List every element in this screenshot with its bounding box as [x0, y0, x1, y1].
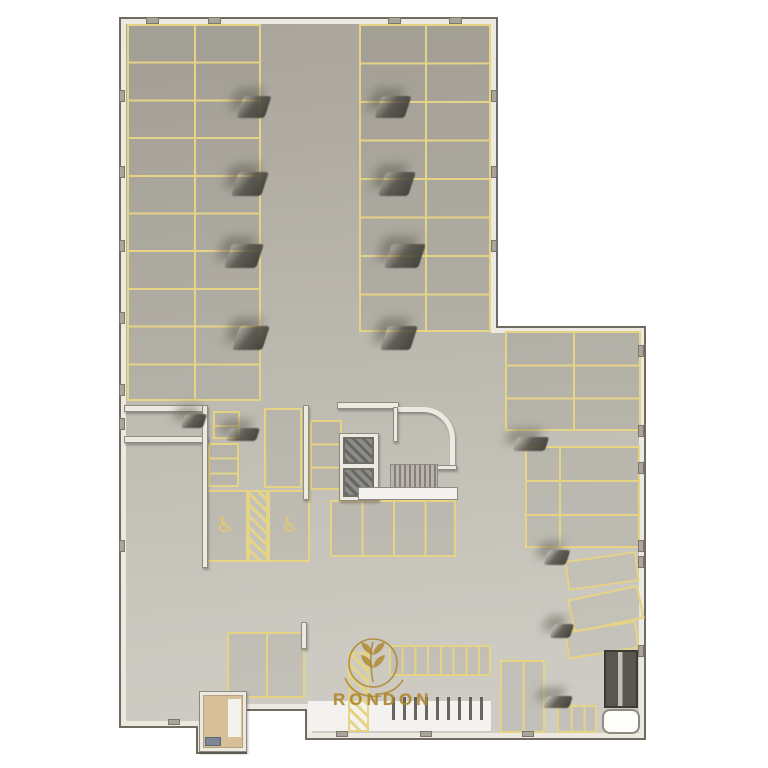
wall-column-tick	[168, 719, 180, 725]
wall-stub-lower-left	[301, 622, 307, 649]
column-shadow	[543, 696, 573, 708]
accessible-icon: ♿	[210, 515, 240, 539]
wall-column-tick	[388, 17, 401, 24]
wall-column-tick	[638, 556, 644, 568]
wall-column-tick	[119, 418, 125, 430]
floorplan-canvas: ♿♿ RONDON	[0, 0, 768, 768]
wall-column-tick	[491, 90, 497, 102]
wall-column-tick	[420, 731, 432, 737]
wall-column-tick	[491, 166, 497, 178]
wall-column-tick	[119, 384, 125, 396]
stalls-lower-left	[227, 632, 305, 698]
column-shadow	[513, 437, 550, 451]
stair-landing-strip	[358, 487, 458, 500]
core-wall-left-upper	[393, 407, 398, 442]
core-wall-top	[337, 402, 399, 409]
ramp-wall-right	[202, 405, 208, 568]
moto-stalls-south	[557, 705, 597, 733]
logo-text: RONDON	[333, 690, 473, 710]
wall-column-tick	[638, 645, 644, 657]
utility-room-white-strip	[228, 699, 241, 737]
wall-column-tick	[522, 731, 534, 737]
wall-column-tick	[119, 240, 125, 252]
stall-pair-south	[500, 660, 545, 733]
wall-column-tick	[119, 90, 125, 102]
column-shadow	[181, 414, 208, 428]
wall-column-tick	[119, 540, 125, 552]
wall-column-tick	[638, 462, 644, 474]
wall-column-tick	[336, 731, 348, 737]
wall-column-tick	[146, 17, 159, 24]
parking-group-east	[525, 446, 640, 548]
white-room-southeast	[602, 709, 640, 734]
developer-logo: RONDON	[325, 630, 475, 722]
ramp-wall-mid	[124, 436, 208, 443]
moto-stack-core-left	[310, 420, 342, 490]
parking-group-east-divider	[559, 446, 561, 548]
stair-treads	[390, 464, 438, 488]
core-separation-wall	[303, 405, 309, 500]
ramp-wall-top	[124, 405, 206, 412]
wall-column-tick	[491, 240, 497, 252]
wall-column-tick	[638, 345, 644, 357]
wall-column-tick	[119, 312, 125, 324]
utility-room-equipment	[205, 737, 221, 746]
stall-large-vertical	[264, 408, 302, 488]
wall-column-tick	[119, 166, 125, 178]
parking-grid-southeast	[505, 331, 641, 431]
wall-column-tick	[638, 425, 644, 437]
wall-column-tick	[449, 17, 462, 24]
wall-shadow-segment	[226, 428, 260, 441]
accessible-hatch-stripe	[248, 490, 268, 562]
wall-column-tick	[638, 540, 644, 552]
exit-ramp-dark	[604, 650, 638, 708]
accessible-icon: ♿	[275, 515, 305, 539]
parking-grid-right	[359, 24, 491, 332]
wall-column-tick	[208, 17, 221, 24]
stalls-below-core	[330, 500, 456, 557]
elevator-cab-floor	[343, 437, 374, 464]
moto-stack-lower	[208, 443, 239, 487]
